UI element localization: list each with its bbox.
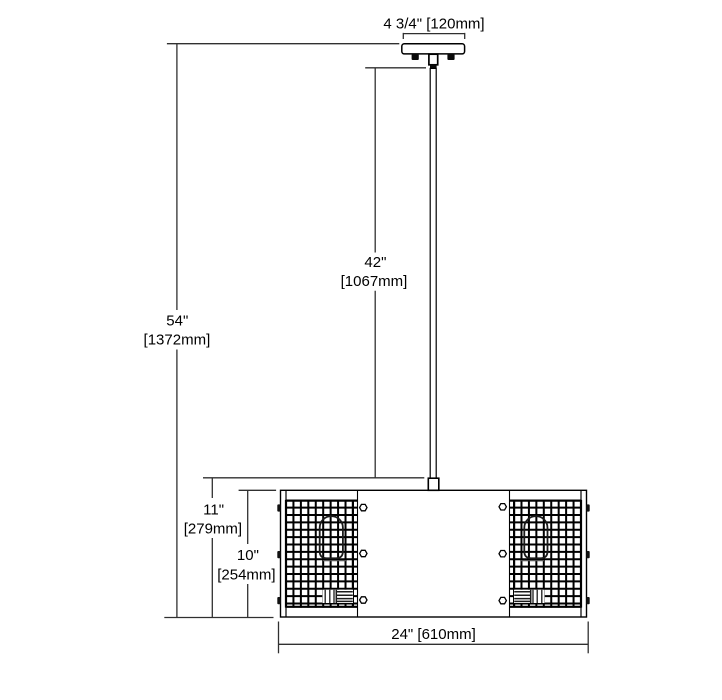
svg-text:42": 42" [364, 254, 386, 271]
svg-text:[1067mm]: [1067mm] [341, 273, 408, 290]
svg-text:10": 10" [237, 547, 259, 564]
svg-text:[1372mm]: [1372mm] [144, 331, 211, 348]
svg-text:54": 54" [166, 312, 188, 329]
svg-text:[254mm]: [254mm] [217, 566, 275, 583]
svg-text:24" [610mm]: 24" [610mm] [391, 626, 476, 643]
svg-text:4 3/4" [120mm]: 4 3/4" [120mm] [383, 16, 484, 33]
svg-text:11": 11" [203, 502, 224, 519]
svg-text:[279mm]: [279mm] [184, 521, 242, 538]
